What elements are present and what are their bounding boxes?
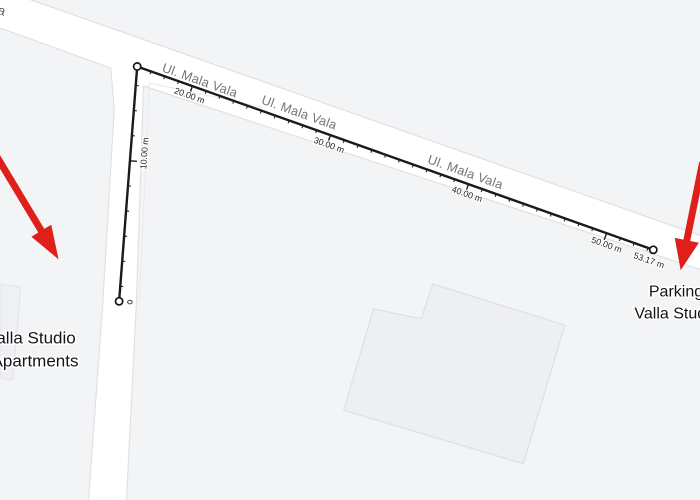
svg-text:Parking: Parking <box>649 284 700 301</box>
svg-text:Valla Studio: Valla Studio <box>0 329 76 348</box>
svg-text:Valla Studio: Valla Studio <box>634 306 700 323</box>
svg-text:Apartments: Apartments <box>0 351 78 370</box>
